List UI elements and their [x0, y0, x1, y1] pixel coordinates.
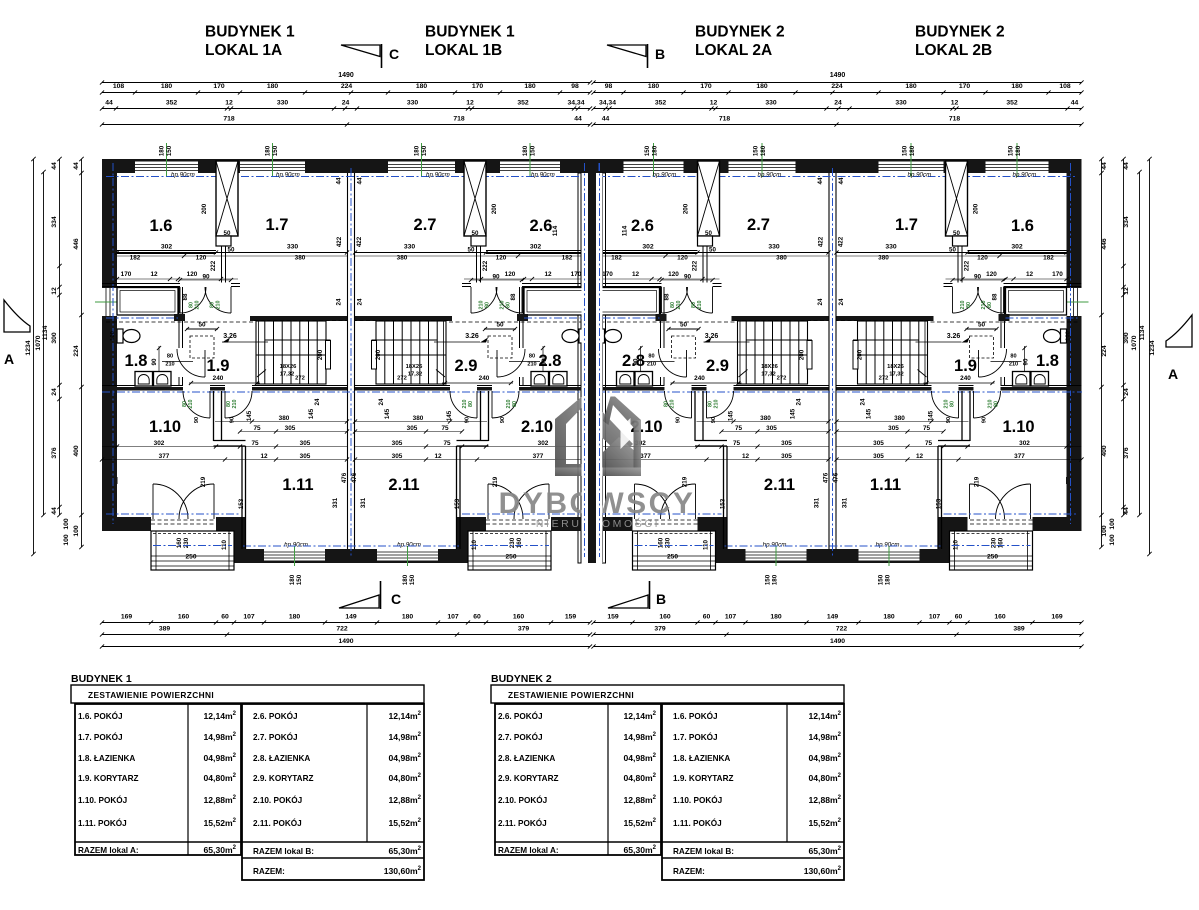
- svg-text:380: 380: [413, 415, 424, 422]
- svg-text:170: 170: [700, 83, 712, 90]
- svg-text:210: 210: [647, 362, 656, 368]
- svg-text:160: 160: [516, 537, 523, 548]
- svg-text:222: 222: [964, 260, 971, 271]
- svg-text:18X26: 18X26: [761, 364, 779, 370]
- svg-text:2.7. POKÓJ: 2.7. POKÓJ: [498, 731, 543, 742]
- svg-text:B: B: [655, 46, 665, 62]
- svg-text:100: 100: [73, 525, 80, 537]
- svg-text:302: 302: [538, 440, 549, 447]
- svg-text:230: 230: [991, 537, 998, 548]
- svg-text:180: 180: [159, 145, 166, 156]
- svg-text:210: 210: [960, 301, 966, 310]
- svg-text:hp.90cm: hp.90cm: [531, 172, 555, 179]
- svg-text:18X26: 18X26: [887, 364, 905, 370]
- svg-text:12: 12: [544, 271, 552, 278]
- svg-text:110: 110: [703, 539, 710, 550]
- svg-text:169: 169: [121, 614, 133, 621]
- svg-text:352: 352: [1006, 100, 1018, 107]
- svg-text:120: 120: [187, 271, 198, 278]
- svg-text:1.11. POKÓJ: 1.11. POKÓJ: [673, 817, 722, 828]
- svg-text:182: 182: [130, 255, 141, 262]
- svg-text:60: 60: [221, 614, 229, 621]
- svg-text:1490: 1490: [338, 72, 354, 79]
- svg-text:305: 305: [392, 453, 403, 460]
- svg-text:331: 331: [814, 497, 821, 508]
- svg-text:377: 377: [533, 453, 544, 460]
- svg-text:75: 75: [443, 440, 451, 447]
- svg-text:330: 330: [895, 100, 907, 107]
- svg-text:380: 380: [878, 255, 889, 262]
- svg-text:44: 44: [1123, 507, 1130, 515]
- svg-text:272: 272: [397, 376, 407, 382]
- svg-text:75: 75: [733, 440, 741, 447]
- svg-text:24: 24: [314, 398, 321, 405]
- svg-text:24: 24: [357, 298, 364, 305]
- svg-text:160: 160: [513, 614, 525, 621]
- svg-text:210: 210: [714, 400, 720, 409]
- svg-text:200: 200: [973, 203, 980, 214]
- svg-text:210: 210: [1009, 362, 1018, 368]
- svg-text:44: 44: [838, 177, 845, 184]
- svg-text:153: 153: [238, 498, 245, 509]
- svg-text:90: 90: [194, 417, 200, 423]
- svg-text:2.7. POKÓJ: 2.7. POKÓJ: [253, 731, 298, 742]
- svg-text:1.7. POKÓJ: 1.7. POKÓJ: [673, 731, 718, 742]
- svg-text:180: 180: [883, 614, 895, 621]
- svg-text:2.8: 2.8: [539, 352, 562, 370]
- svg-text:04,80m2: 04,80m2: [204, 773, 237, 783]
- svg-text:60: 60: [955, 614, 963, 621]
- svg-text:2.7: 2.7: [414, 216, 437, 234]
- svg-text:150: 150: [166, 145, 173, 156]
- svg-text:180: 180: [265, 145, 272, 156]
- svg-text:377: 377: [640, 453, 651, 460]
- svg-text:1.11. POKÓJ: 1.11. POKÓJ: [78, 817, 127, 828]
- svg-text:170: 170: [602, 271, 613, 278]
- svg-text:RAZEM lokal A:: RAZEM lokal A:: [498, 846, 559, 855]
- svg-text:1490: 1490: [830, 638, 845, 645]
- svg-text:330: 330: [404, 244, 416, 251]
- svg-text:hp.90cm: hp.90cm: [426, 172, 450, 179]
- svg-text:219: 219: [974, 476, 981, 487]
- svg-text:90: 90: [230, 417, 236, 423]
- svg-text:44: 44: [105, 100, 113, 107]
- svg-text:224: 224: [831, 83, 843, 90]
- svg-text:150: 150: [753, 145, 760, 156]
- svg-text:2.10. POKÓJ: 2.10. POKÓJ: [253, 794, 302, 805]
- svg-text:379: 379: [518, 626, 530, 633]
- svg-text:380: 380: [295, 255, 306, 262]
- svg-text:330: 330: [407, 100, 419, 107]
- svg-text:BUDYNEK 2: BUDYNEK 2: [695, 24, 785, 41]
- svg-text:04,80m2: 04,80m2: [389, 773, 422, 783]
- svg-text:250: 250: [667, 554, 678, 561]
- svg-text:2.8. ŁAZIENKA: 2.8. ŁAZIENKA: [253, 754, 310, 763]
- svg-text:12: 12: [225, 100, 233, 107]
- svg-text:210: 210: [944, 400, 950, 409]
- svg-text:1490: 1490: [338, 638, 353, 645]
- svg-text:65,30m2: 65,30m2: [809, 846, 842, 856]
- svg-text:90: 90: [492, 274, 500, 281]
- svg-text:04,80m2: 04,80m2: [809, 773, 842, 783]
- svg-text:88: 88: [182, 293, 189, 300]
- svg-text:hp.90cm: hp.90cm: [758, 172, 782, 179]
- svg-text:250: 250: [505, 554, 516, 561]
- svg-text:130,60m2: 130,60m2: [384, 866, 422, 876]
- svg-text:24: 24: [1123, 388, 1130, 396]
- svg-text:B: B: [656, 591, 666, 607]
- svg-text:1.9. KORYTARZ: 1.9. KORYTARZ: [78, 774, 139, 783]
- svg-text:14,98m2: 14,98m2: [389, 732, 422, 742]
- svg-text:210: 210: [981, 301, 987, 310]
- svg-text:98: 98: [571, 83, 579, 90]
- svg-text:2.6. POKÓJ: 2.6. POKÓJ: [253, 710, 298, 721]
- svg-text:BUDYNEK 2: BUDYNEK 2: [915, 24, 1005, 41]
- svg-text:331: 331: [360, 497, 367, 508]
- svg-text:2.6. POKÓJ: 2.6. POKÓJ: [498, 710, 543, 721]
- svg-text:12: 12: [51, 287, 58, 295]
- svg-text:150: 150: [644, 145, 651, 156]
- svg-text:200: 200: [857, 349, 864, 360]
- svg-text:150: 150: [421, 145, 428, 156]
- svg-text:305: 305: [392, 440, 403, 447]
- svg-text:15,52m2: 15,52m2: [809, 818, 842, 828]
- svg-text:376: 376: [1123, 447, 1130, 459]
- svg-text:17,32: 17,32: [408, 372, 423, 378]
- svg-text:305: 305: [300, 453, 311, 460]
- svg-text:331: 331: [332, 497, 339, 508]
- svg-text:222: 222: [482, 260, 489, 271]
- svg-text:90: 90: [974, 274, 982, 281]
- svg-text:400: 400: [1101, 445, 1108, 457]
- svg-text:100: 100: [63, 534, 70, 546]
- svg-text:149: 149: [827, 614, 839, 621]
- svg-text:107: 107: [243, 614, 255, 621]
- svg-text:180: 180: [760, 145, 767, 156]
- svg-text:120: 120: [196, 255, 207, 262]
- svg-text:110: 110: [221, 539, 228, 550]
- svg-text:hp.90cm: hp.90cm: [653, 172, 677, 179]
- svg-text:60: 60: [473, 614, 481, 621]
- svg-text:305: 305: [888, 425, 899, 432]
- svg-text:44: 44: [51, 507, 58, 515]
- svg-text:100: 100: [110, 331, 116, 341]
- svg-text:210: 210: [462, 400, 468, 409]
- svg-text:476: 476: [351, 472, 358, 483]
- svg-text:219: 219: [492, 476, 499, 487]
- svg-text:12: 12: [742, 453, 750, 460]
- svg-text:108: 108: [113, 83, 125, 90]
- svg-text:75: 75: [923, 425, 931, 432]
- svg-text:352: 352: [166, 100, 178, 107]
- svg-text:12: 12: [1123, 287, 1130, 295]
- svg-text:305: 305: [766, 425, 777, 432]
- svg-text:24: 24: [336, 298, 343, 305]
- svg-text:376: 376: [51, 447, 58, 459]
- svg-text:400: 400: [73, 445, 80, 457]
- svg-text:18X26: 18X26: [280, 364, 298, 370]
- svg-text:130,60m2: 130,60m2: [804, 866, 842, 876]
- svg-text:160: 160: [659, 614, 671, 621]
- svg-text:1.6: 1.6: [150, 217, 173, 235]
- svg-text:169: 169: [1051, 614, 1063, 621]
- svg-text:BUDYNEK 1: BUDYNEK 1: [205, 24, 295, 41]
- svg-text:44: 44: [817, 177, 824, 184]
- svg-text:230: 230: [183, 537, 190, 548]
- svg-text:90: 90: [982, 417, 988, 423]
- svg-text:108: 108: [1059, 83, 1071, 90]
- svg-text:180: 180: [756, 83, 768, 90]
- svg-text:1.8: 1.8: [125, 352, 148, 370]
- svg-text:1134: 1134: [42, 325, 49, 340]
- svg-text:210: 210: [670, 400, 676, 409]
- svg-text:1.6. POKÓJ: 1.6. POKÓJ: [78, 710, 123, 721]
- svg-text:180: 180: [652, 145, 659, 156]
- svg-text:302: 302: [1019, 440, 1030, 447]
- svg-text:04,98m2: 04,98m2: [809, 753, 842, 763]
- svg-text:12,88m2: 12,88m2: [389, 795, 422, 805]
- svg-text:380: 380: [776, 255, 787, 262]
- svg-text:380: 380: [894, 415, 905, 422]
- svg-text:2.11: 2.11: [388, 476, 419, 494]
- svg-text:302: 302: [1011, 244, 1023, 251]
- svg-text:80: 80: [485, 302, 491, 308]
- svg-text:90: 90: [946, 417, 952, 423]
- svg-text:170: 170: [213, 83, 225, 90]
- svg-text:65,30m2: 65,30m2: [204, 845, 237, 855]
- svg-text:2.11: 2.11: [764, 476, 795, 494]
- svg-text:2.8: 2.8: [622, 352, 645, 370]
- svg-text:1134: 1134: [1139, 325, 1146, 340]
- svg-text:422: 422: [356, 236, 363, 247]
- svg-text:RAZEM lokal B:: RAZEM lokal B:: [673, 847, 734, 856]
- svg-text:12,88m2: 12,88m2: [624, 795, 657, 805]
- svg-text:422: 422: [336, 236, 343, 247]
- svg-text:446: 446: [73, 238, 80, 250]
- svg-text:240: 240: [213, 375, 224, 382]
- svg-text:hp.90cm: hp.90cm: [876, 542, 900, 549]
- svg-text:BUDYNEK 1: BUDYNEK 1: [71, 673, 132, 685]
- svg-text:RAZEM lokal A:: RAZEM lokal A:: [78, 846, 139, 855]
- svg-text:ZESTAWIENIE POWIERZCHNI: ZESTAWIENIE POWIERZCHNI: [88, 690, 214, 700]
- svg-text:1.7: 1.7: [266, 216, 289, 234]
- svg-text:44: 44: [1071, 100, 1079, 107]
- svg-text:44: 44: [73, 162, 80, 170]
- svg-text:330: 330: [768, 244, 780, 251]
- svg-text:12: 12: [260, 453, 268, 460]
- svg-text:145: 145: [928, 410, 935, 421]
- svg-text:1.10. POKÓJ: 1.10. POKÓJ: [78, 794, 127, 805]
- svg-text:180: 180: [909, 145, 916, 156]
- svg-text:380: 380: [760, 415, 771, 422]
- svg-text:210: 210: [216, 301, 222, 310]
- svg-text:90: 90: [465, 417, 471, 423]
- svg-text:153: 153: [936, 498, 943, 509]
- svg-text:98: 98: [605, 83, 613, 90]
- svg-text:04,98m2: 04,98m2: [204, 753, 237, 763]
- svg-text:180: 180: [522, 145, 529, 156]
- svg-text:12: 12: [916, 453, 924, 460]
- svg-text:302: 302: [642, 244, 654, 251]
- svg-text:90: 90: [500, 417, 506, 423]
- svg-text:331: 331: [842, 497, 849, 508]
- svg-text:2.11. POKÓJ: 2.11. POKÓJ: [253, 817, 302, 828]
- svg-text:305: 305: [873, 453, 884, 460]
- svg-text:334: 334: [1123, 216, 1130, 228]
- svg-text:12: 12: [632, 271, 640, 278]
- svg-text:hp.90cm: hp.90cm: [276, 172, 300, 179]
- svg-text:2.6: 2.6: [530, 217, 553, 235]
- svg-text:hp.90cm: hp.90cm: [1013, 172, 1037, 179]
- svg-text:240: 240: [479, 375, 490, 382]
- svg-text:446: 446: [1101, 238, 1108, 250]
- svg-text:90: 90: [711, 417, 717, 423]
- svg-text:75: 75: [441, 425, 449, 432]
- svg-text:44: 44: [574, 116, 582, 123]
- svg-text:1.10: 1.10: [1002, 418, 1034, 436]
- svg-text:80: 80: [167, 354, 173, 360]
- svg-text:18X26: 18X26: [406, 364, 424, 370]
- svg-text:60: 60: [703, 614, 711, 621]
- svg-text:180: 180: [289, 614, 301, 621]
- svg-text:145: 145: [446, 410, 453, 421]
- svg-text:718: 718: [949, 116, 961, 123]
- svg-text:04,98m2: 04,98m2: [389, 753, 422, 763]
- svg-text:330: 330: [885, 244, 897, 251]
- svg-text:90: 90: [684, 274, 692, 281]
- svg-text:34,34: 34,34: [599, 100, 616, 107]
- svg-text:200: 200: [491, 203, 498, 214]
- svg-text:12,88m2: 12,88m2: [204, 795, 237, 805]
- svg-text:120: 120: [677, 255, 688, 262]
- svg-text:272: 272: [879, 376, 889, 382]
- svg-text:80: 80: [529, 354, 535, 360]
- svg-text:476: 476: [341, 472, 348, 483]
- svg-text:389: 389: [159, 626, 171, 633]
- svg-text:50: 50: [198, 322, 206, 329]
- svg-text:hp.90cm: hp.90cm: [763, 542, 787, 549]
- svg-text:377: 377: [1014, 453, 1025, 460]
- svg-text:1.10: 1.10: [149, 418, 181, 436]
- svg-text:12,88m2: 12,88m2: [809, 795, 842, 805]
- svg-text:180: 180: [267, 83, 279, 90]
- svg-text:210: 210: [527, 362, 536, 368]
- svg-text:145: 145: [728, 410, 735, 421]
- svg-text:100: 100: [1109, 534, 1116, 546]
- svg-text:200: 200: [317, 349, 324, 360]
- svg-text:222: 222: [692, 260, 699, 271]
- svg-text:180: 180: [648, 83, 660, 90]
- svg-text:160: 160: [994, 614, 1006, 621]
- svg-text:300: 300: [1123, 332, 1130, 344]
- svg-text:210: 210: [479, 301, 485, 310]
- svg-text:159: 159: [565, 614, 577, 621]
- svg-text:80: 80: [1010, 354, 1016, 360]
- svg-text:1490: 1490: [830, 72, 846, 79]
- svg-text:65,30m2: 65,30m2: [389, 846, 422, 856]
- svg-text:210: 210: [232, 400, 238, 409]
- svg-text:379: 379: [654, 626, 666, 633]
- svg-text:24: 24: [817, 298, 824, 305]
- svg-text:330: 330: [765, 100, 777, 107]
- svg-text:224: 224: [341, 83, 353, 90]
- svg-text:180: 180: [770, 614, 782, 621]
- svg-text:180: 180: [1015, 145, 1022, 156]
- svg-text:302: 302: [161, 244, 173, 251]
- svg-text:200: 200: [799, 349, 806, 360]
- svg-text:180: 180: [416, 83, 428, 90]
- svg-text:17,32: 17,32: [280, 372, 295, 378]
- svg-text:352: 352: [517, 100, 529, 107]
- svg-text:160: 160: [178, 614, 190, 621]
- svg-text:120: 120: [496, 255, 507, 262]
- svg-text:170: 170: [472, 83, 484, 90]
- svg-text:3.26: 3.26: [947, 333, 961, 340]
- svg-text:180: 180: [1011, 83, 1023, 90]
- svg-text:110: 110: [471, 539, 478, 550]
- svg-text:50: 50: [978, 322, 986, 329]
- svg-text:120: 120: [977, 255, 988, 262]
- svg-text:150: 150: [1008, 145, 1015, 156]
- svg-text:2.11. POKÓJ: 2.11. POKÓJ: [498, 817, 547, 828]
- svg-text:88: 88: [992, 293, 999, 300]
- svg-text:160: 160: [998, 537, 1005, 548]
- svg-text:24: 24: [834, 100, 842, 107]
- svg-text:150: 150: [530, 145, 537, 156]
- svg-text:12,14m2: 12,14m2: [809, 711, 842, 721]
- svg-text:12: 12: [710, 100, 718, 107]
- svg-text:hp.90cm: hp.90cm: [908, 172, 932, 179]
- svg-text:300: 300: [51, 332, 58, 344]
- svg-text:219: 219: [682, 476, 689, 487]
- svg-text:80: 80: [994, 401, 1000, 407]
- svg-text:14,98m2: 14,98m2: [624, 732, 657, 742]
- svg-text:12: 12: [150, 271, 158, 278]
- svg-text:330: 330: [287, 244, 299, 251]
- svg-text:1.7: 1.7: [895, 216, 918, 234]
- svg-text:C: C: [391, 591, 401, 607]
- svg-text:170: 170: [959, 83, 971, 90]
- svg-text:145: 145: [308, 408, 315, 419]
- svg-text:240: 240: [694, 375, 705, 382]
- svg-text:100: 100: [1101, 525, 1108, 537]
- svg-text:17,32: 17,32: [889, 372, 904, 378]
- svg-text:3.26: 3.26: [705, 333, 719, 340]
- svg-text:272: 272: [295, 376, 305, 382]
- svg-text:250: 250: [185, 554, 196, 561]
- svg-text:LOKAL 2B: LOKAL 2B: [915, 42, 992, 59]
- svg-text:3.26: 3.26: [465, 333, 479, 340]
- svg-text:718: 718: [453, 116, 465, 123]
- svg-text:302: 302: [154, 440, 165, 447]
- svg-text:75: 75: [735, 425, 743, 432]
- svg-text:1.9: 1.9: [954, 357, 977, 375]
- svg-text:1.8. ŁAZIENKA: 1.8. ŁAZIENKA: [673, 754, 730, 763]
- svg-text:159: 159: [607, 614, 619, 621]
- svg-text:1234: 1234: [1149, 340, 1156, 355]
- svg-text:24: 24: [342, 100, 350, 107]
- svg-text:15,52m2: 15,52m2: [204, 818, 237, 828]
- svg-text:170: 170: [121, 271, 132, 278]
- svg-text:200: 200: [201, 203, 208, 214]
- svg-text:LOKAL 1A: LOKAL 1A: [205, 42, 282, 59]
- svg-text:hp.90cm: hp.90cm: [171, 172, 195, 179]
- svg-text:44: 44: [336, 177, 343, 184]
- svg-text:100: 100: [63, 518, 70, 530]
- svg-text:1.11: 1.11: [870, 476, 901, 494]
- svg-text:14,98m2: 14,98m2: [204, 732, 237, 742]
- svg-text:305: 305: [407, 425, 418, 432]
